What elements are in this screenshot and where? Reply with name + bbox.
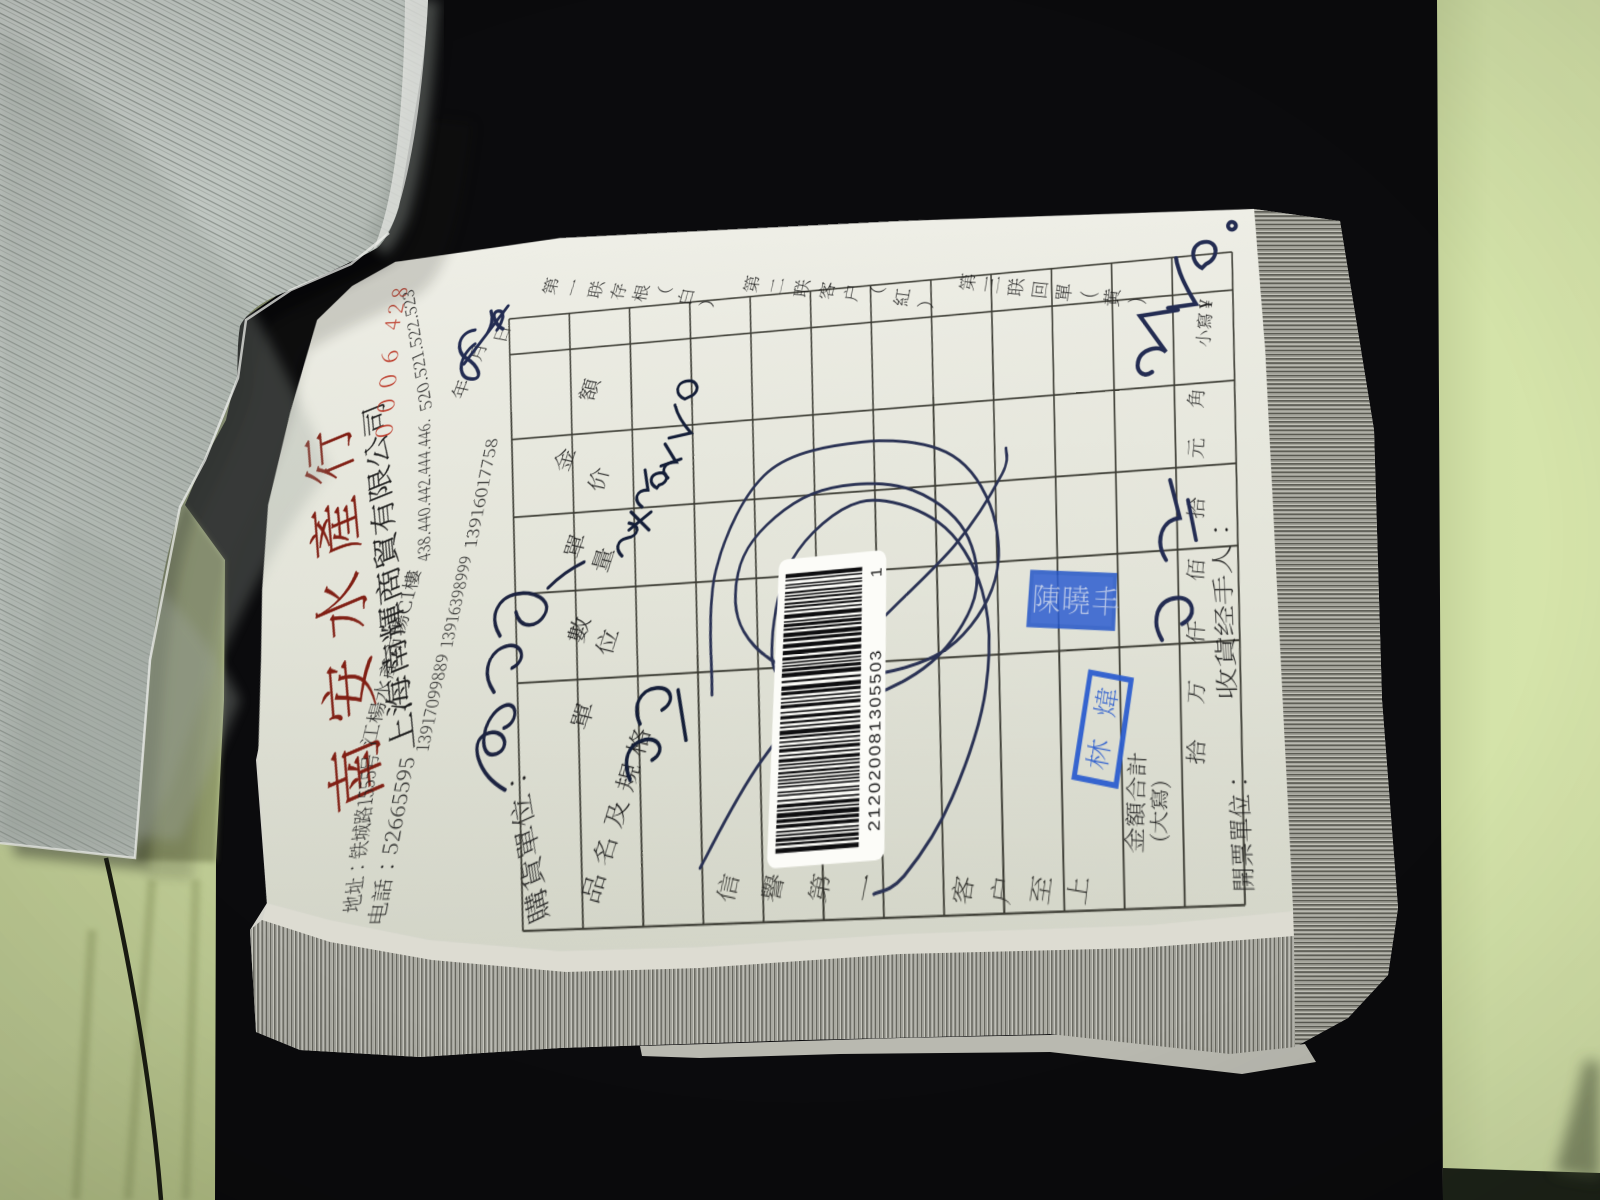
svg-text:1: 1 [869,567,886,578]
svg-text:212020081305503: 212020081305503 [866,648,885,832]
svg-text:¥: ¥ [1196,299,1217,310]
